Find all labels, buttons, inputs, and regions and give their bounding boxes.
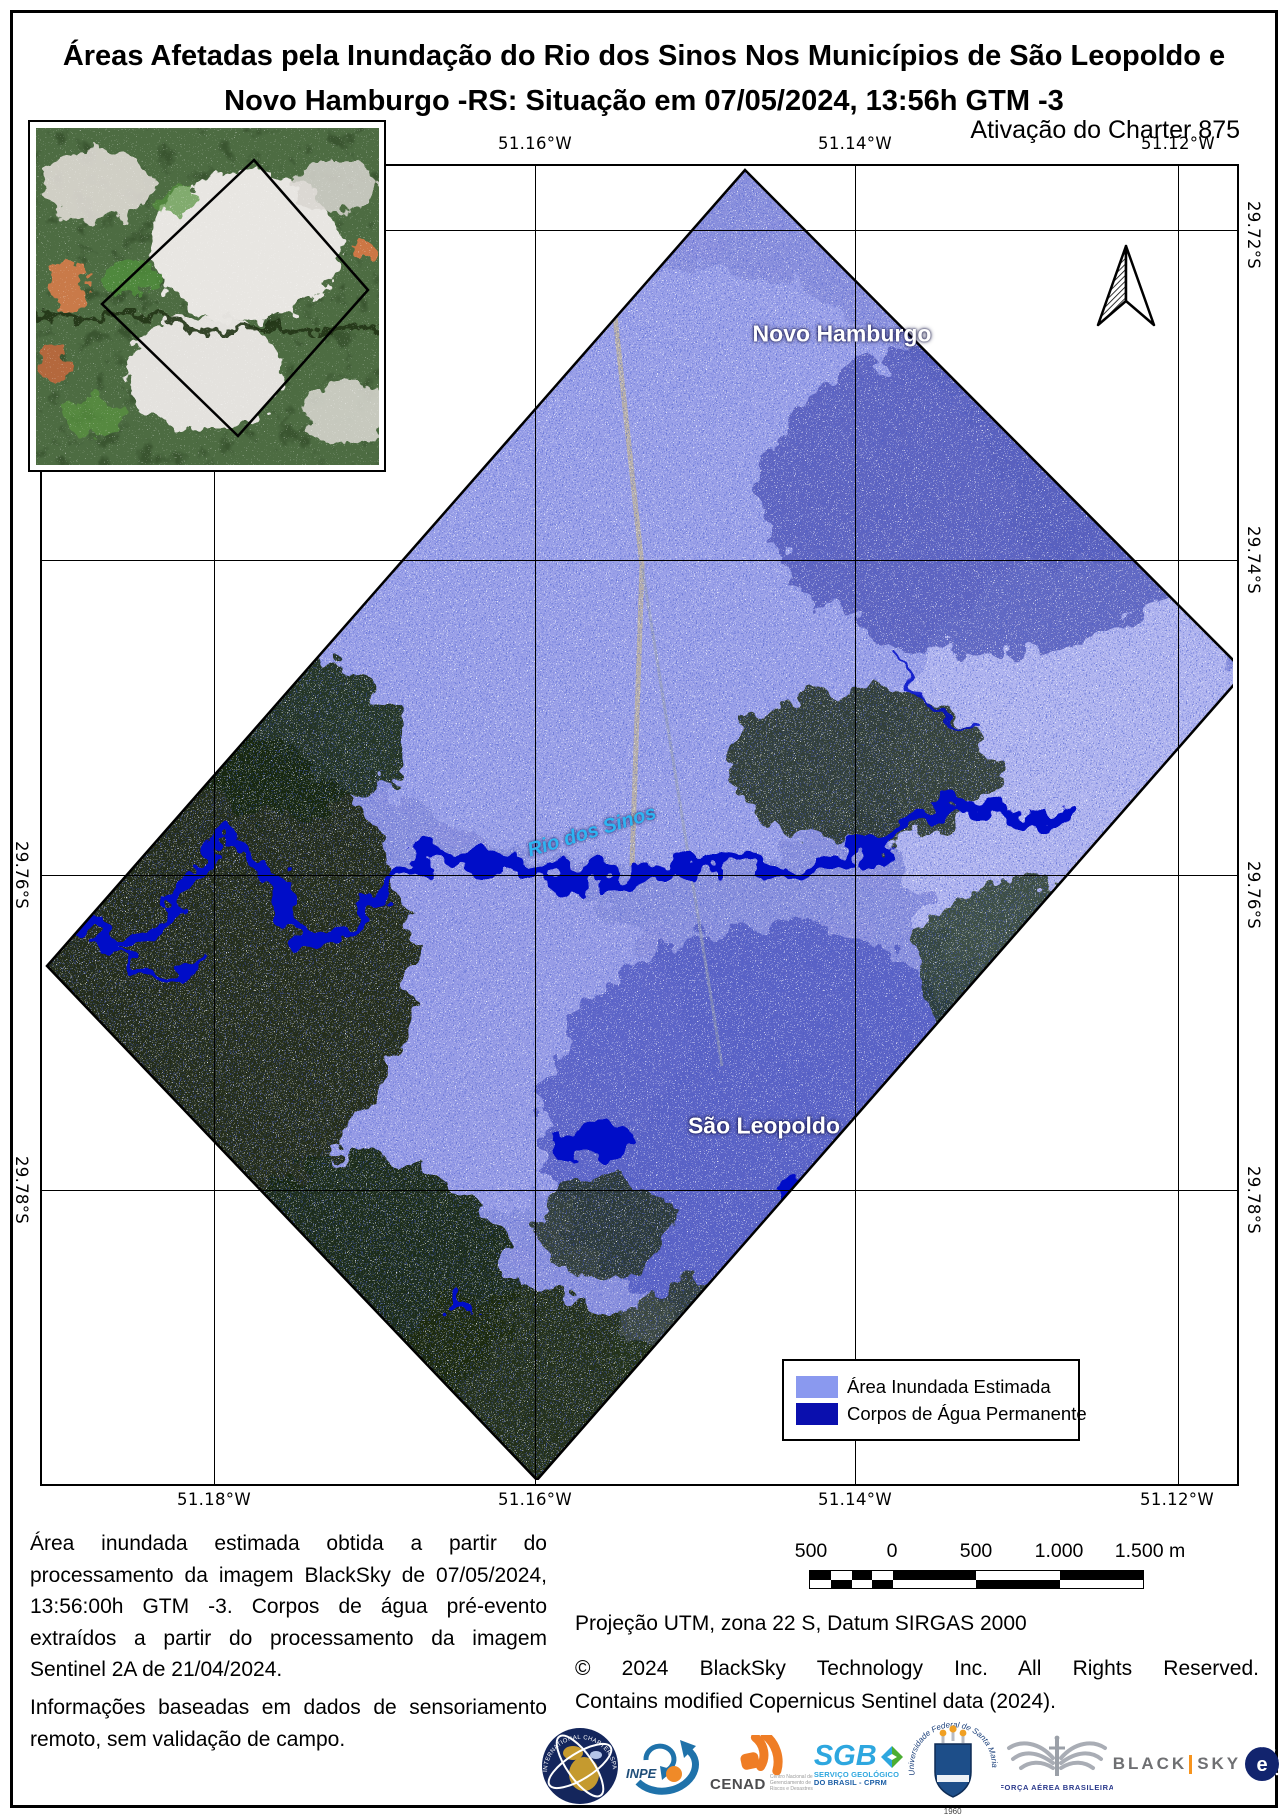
sgb-subtitle-2: DO BRASIL - CPRM bbox=[814, 1779, 905, 1787]
graticule-line-51-12w bbox=[1178, 166, 1179, 1484]
blacksky-word-black: BLACK bbox=[1113, 1754, 1188, 1774]
graticule-line-51-14w bbox=[855, 166, 856, 1484]
legend-label-flood: Área Inundada Estimada bbox=[847, 1376, 1051, 1398]
grid-label-bottom-1: 51.16°W bbox=[498, 1490, 572, 1509]
legend-swatch-permanent-water bbox=[796, 1403, 838, 1425]
sgb-wordmark: SGB bbox=[814, 1742, 877, 1771]
disclaimer-note: Informações baseadas em dados de sensori… bbox=[30, 1692, 547, 1755]
graticule-line-29-76s bbox=[42, 875, 1237, 876]
fab-wordmark: FORÇA AÉREA BRASILEIRA bbox=[1001, 1783, 1113, 1792]
source-note: Área inundada estimada obtida a partir d… bbox=[30, 1528, 547, 1686]
grid-label-right-1: 29.74°S bbox=[1244, 526, 1263, 594]
graticule-line-51-16w bbox=[535, 166, 536, 1484]
cenad-wordmark: CENAD bbox=[710, 1776, 766, 1793]
scalebar bbox=[809, 1570, 1144, 1589]
grid-label-bottom-3: 51.12°W bbox=[1140, 1490, 1214, 1509]
svg-text:e: e bbox=[1257, 1754, 1268, 1776]
cenad-subtitle: Centro Nacional de Gerenciamento de Risc… bbox=[770, 1775, 814, 1792]
legend-item-permanent-water: Corpos de Água Permanente bbox=[796, 1403, 1066, 1425]
grid-label-top-0: 51.16°W bbox=[498, 134, 572, 153]
cenad-logo: CENAD Centro Nacional de Gerenciamento d… bbox=[710, 1735, 814, 1792]
ufsm-logo: Universidade Federal de Santa Maria 1960 bbox=[905, 1713, 1001, 1816]
scalebar-label-4: 1.500 m bbox=[1115, 1540, 1185, 1563]
blacksky-divider bbox=[1189, 1755, 1192, 1774]
grid-label-bottom-0: 51.18°W bbox=[177, 1490, 251, 1509]
fab-logo: FORÇA AÉREA BRASILEIRA bbox=[1001, 1734, 1113, 1794]
grid-label-left-0: 29.76°S bbox=[12, 841, 31, 909]
legend: Área Inundada Estimada Corpos de Água Pe… bbox=[782, 1359, 1080, 1441]
inpe-wordmark: INPE bbox=[626, 1766, 657, 1781]
legend-swatch-flood bbox=[796, 1376, 838, 1398]
blacksky-word-sky: SKY bbox=[1197, 1754, 1241, 1774]
ufsm-year: 1960 bbox=[944, 1807, 962, 1816]
page-title: Áreas Afetadas pela Inundação do Rio dos… bbox=[59, 34, 1229, 124]
scalebar-row-bottom bbox=[810, 1580, 1143, 1589]
grid-label-left-1: 29.78°S bbox=[12, 1156, 31, 1224]
label-sao-leopoldo: São Leopoldo bbox=[688, 1113, 840, 1140]
scalebar-label-2: 500 bbox=[960, 1540, 993, 1563]
map-sheet: Áreas Afetadas pela Inundação do Rio dos… bbox=[0, 0, 1288, 1818]
copyright-line-1: © 2024 BlackSky Technology Inc. All Righ… bbox=[575, 1657, 1259, 1681]
esa-logo: e esa bbox=[1241, 1743, 1288, 1785]
sgb-logo: SGB SERVIÇO GEOLÓGICO DO BRASIL - CPRM bbox=[814, 1742, 905, 1786]
inpe-logo: INPE bbox=[622, 1732, 710, 1796]
partner-logos: INTERNATIONAL CHARTER SPACE & MAJOR DISA… bbox=[538, 1718, 1264, 1810]
projection-note: Projeção UTM, zona 22 S, Datum SIRGAS 20… bbox=[575, 1612, 1027, 1636]
scalebar-label-1: 0 bbox=[887, 1540, 898, 1563]
north-arrow-icon bbox=[1095, 243, 1157, 331]
grid-label-top-1: 51.14°W bbox=[818, 134, 892, 153]
graticule-line-29-74s bbox=[42, 560, 1237, 561]
grid-label-top-2: 51.12°W bbox=[1141, 134, 1215, 153]
esa-mark: e bbox=[1241, 1743, 1283, 1785]
overview-inset-map bbox=[28, 120, 386, 472]
label-novo-hamburgo: Novo Hamburgo bbox=[753, 321, 932, 348]
blacksky-logo: BLACK SKY bbox=[1113, 1754, 1241, 1774]
grid-label-right-2: 29.76°S bbox=[1244, 861, 1263, 929]
sgb-mark bbox=[879, 1744, 905, 1770]
grid-label-right-3: 29.78°S bbox=[1244, 1166, 1263, 1234]
grid-label-right-0: 29.72°S bbox=[1244, 201, 1263, 269]
scalebar-label-3: 1.000 bbox=[1035, 1540, 1084, 1563]
legend-label-permanent-water: Corpos de Água Permanente bbox=[847, 1403, 1087, 1425]
scalebar-labels: 500 0 500 1.000 1.500 m bbox=[809, 1540, 1154, 1564]
graticule-line-29-78s bbox=[42, 1190, 1237, 1191]
copyright-line-2: Contains modified Copernicus Sentinel da… bbox=[575, 1690, 1259, 1714]
scalebar-row-top bbox=[810, 1571, 1143, 1580]
international-charter-logo: INTERNATIONAL CHARTER SPACE & MAJOR DISA… bbox=[538, 1722, 622, 1806]
grid-label-bottom-2: 51.14°W bbox=[818, 1490, 892, 1509]
legend-item-flood: Área Inundada Estimada bbox=[796, 1376, 1066, 1398]
scalebar-label-0: 500 bbox=[795, 1540, 828, 1563]
